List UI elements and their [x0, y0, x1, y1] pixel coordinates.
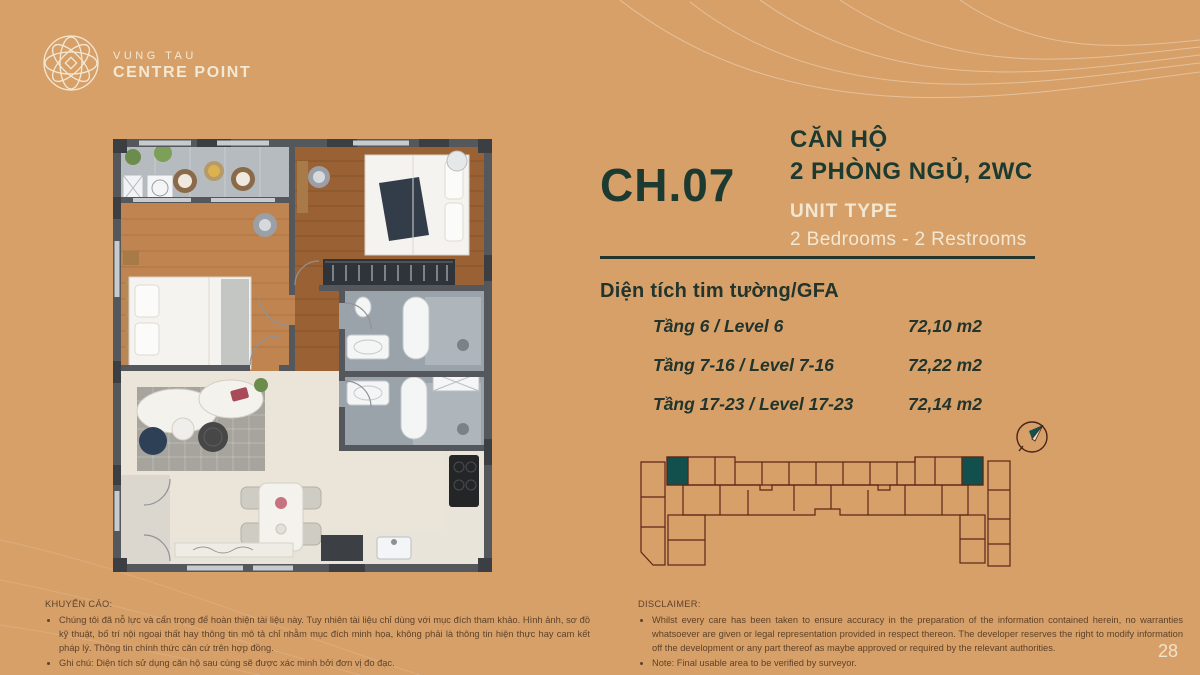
unit-type-value: 2 Bedrooms - 2 Restrooms	[790, 229, 1027, 251]
unit-title-vi-line2: 2 PHÒNG NGỦ, 2WC	[790, 156, 1033, 188]
advisory-vi: KHUYẾN CÁO: Chúng tôi đã nỗ lực và cẩn t…	[45, 598, 590, 672]
area-row-1-value: 72,10 m2	[908, 316, 1003, 337]
area-row-1: Tầng 6 / Level 6 72,10 m2	[653, 316, 1003, 337]
logo-line2: CENTRE POINT	[113, 64, 251, 82]
advisory-vi-heading: KHUYẾN CÁO:	[45, 598, 590, 612]
area-row-3: Tầng 17-23 / Level 17-23 72,14 m2	[653, 394, 1003, 415]
gfa-heading: Diện tích tim tường/GFA	[600, 280, 839, 303]
area-row-1-label: Tầng 6 / Level 6	[653, 316, 908, 337]
brochure-page: VUNG TAU CENTRE POINT	[0, 0, 1200, 675]
compass-icon	[1008, 414, 1056, 462]
area-row-2: Tầng 7-16 / Level 7-16 72,22 m2	[653, 355, 1003, 376]
keyplan	[638, 448, 1013, 573]
page-number: 28	[1158, 641, 1178, 662]
disclaimer-en-bullet-2: Note: Final usable area to be verified b…	[652, 657, 1183, 671]
logo-wordmark: VUNG TAU CENTRE POINT	[113, 50, 251, 82]
divider-line	[600, 256, 1035, 259]
unit-title-vi-line1: CĂN HỘ	[790, 124, 1033, 156]
unit-type-label: UNIT TYPE	[790, 201, 898, 223]
advisory-vi-bullet-2: Ghi chú: Diện tích sử dụng căn hộ sau cù…	[59, 657, 590, 671]
area-row-2-label: Tầng 7-16 / Level 7-16	[653, 355, 908, 376]
wardrobe	[323, 259, 455, 285]
living-room-furniture	[137, 378, 268, 471]
logo-flower-icon	[33, 22, 109, 104]
disclaimer-en-heading: DISCLAIMER:	[638, 598, 1183, 612]
disclaimer-en-bullet-1: Whilst every care has been taken to ensu…	[652, 614, 1183, 656]
advisory-vi-bullet-1: Chúng tôi đã nỗ lực và cẩn trọng để hoàn…	[59, 614, 590, 656]
logo-line1: VUNG TAU	[113, 50, 251, 62]
unit-code: CH.07	[600, 158, 735, 212]
unit-title-vi: CĂN HỘ 2 PHÒNG NGỦ, 2WC	[790, 124, 1033, 189]
disclaimer-en: DISCLAIMER: Whilst every care has been t…	[638, 598, 1183, 672]
area-row-2-value: 72,22 m2	[908, 355, 1003, 376]
keyplan-highlight-left	[667, 457, 688, 485]
keyplan-highlight-right	[962, 457, 983, 485]
floor-plan	[113, 139, 492, 572]
area-row-3-value: 72,14 m2	[908, 394, 1003, 415]
area-row-3-label: Tầng 17-23 / Level 17-23	[653, 394, 908, 415]
